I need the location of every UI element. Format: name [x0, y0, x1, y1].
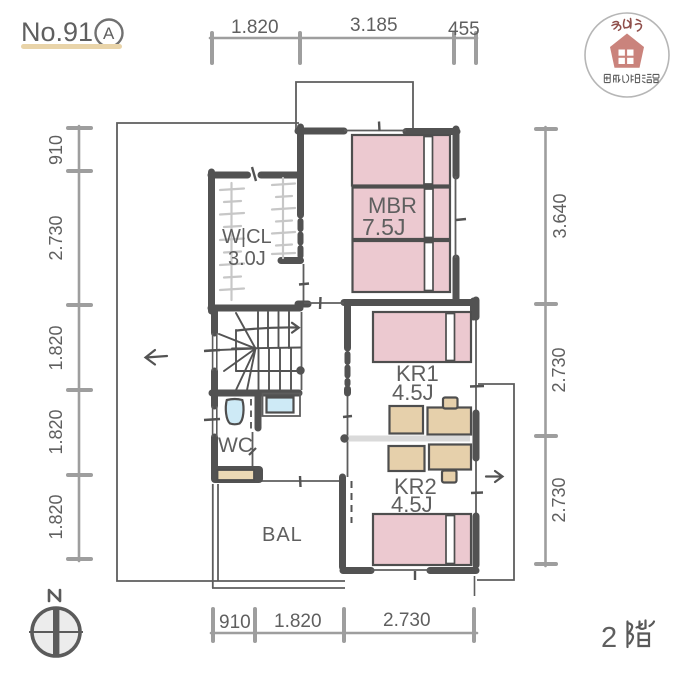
svg-text:No.91: No.91 — [21, 17, 93, 47]
svg-text:910: 910 — [219, 612, 251, 633]
svg-text:910: 910 — [46, 135, 66, 165]
svg-text:2: 2 — [601, 622, 617, 654]
svg-text:2.730: 2.730 — [549, 477, 569, 522]
svg-text:455: 455 — [448, 19, 480, 40]
svg-text:WC: WC — [218, 434, 253, 457]
svg-text:1.820: 1.820 — [274, 611, 322, 632]
svg-text:1.820: 1.820 — [231, 17, 279, 38]
svg-text:2.730: 2.730 — [46, 215, 66, 260]
svg-text:2.730: 2.730 — [383, 610, 431, 631]
svg-text:BAL: BAL — [262, 524, 303, 546]
svg-text:3.185: 3.185 — [350, 15, 398, 36]
svg-text:3.0J: 3.0J — [228, 248, 266, 270]
svg-text:3.640: 3.640 — [550, 193, 570, 238]
svg-text:1.820: 1.820 — [46, 494, 66, 539]
svg-text:W|CL: W|CL — [222, 226, 272, 248]
svg-text:1.820: 1.820 — [46, 325, 66, 370]
svg-text:4.5J: 4.5J — [392, 380, 434, 405]
svg-text:A: A — [103, 24, 115, 43]
svg-text:1.820: 1.820 — [46, 409, 66, 454]
svg-text:2.730: 2.730 — [549, 347, 569, 392]
svg-text:7.5J: 7.5J — [362, 214, 405, 240]
